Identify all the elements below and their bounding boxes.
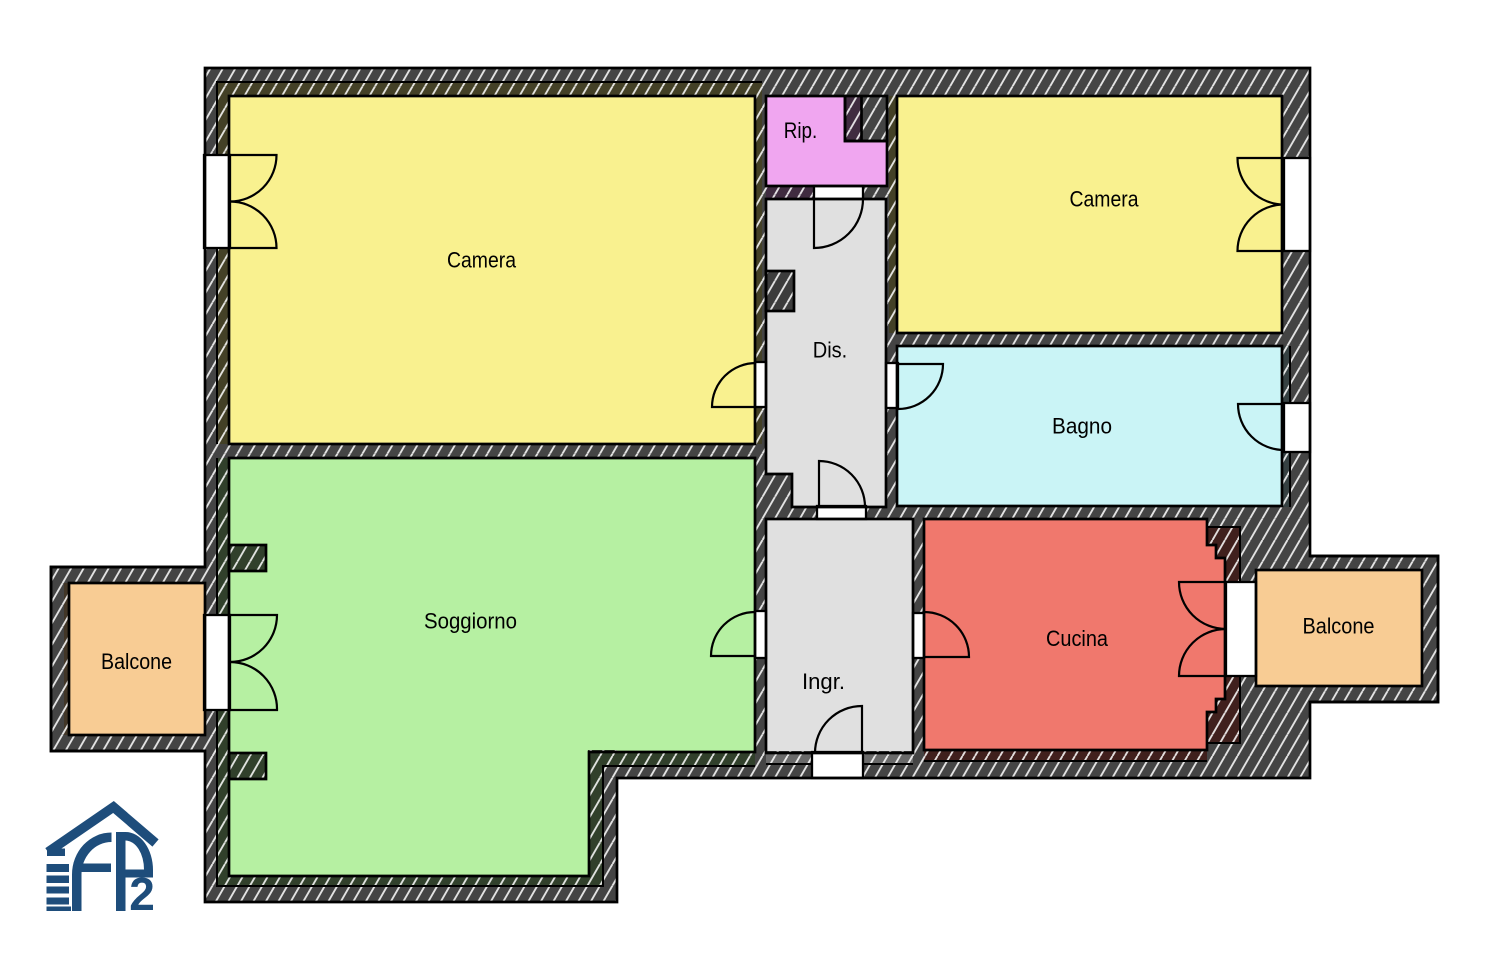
svg-text:Balcone: Balcone [101,649,172,674]
svg-text:Ingr.: Ingr. [802,669,845,694]
svg-text:Camera: Camera [1070,187,1140,212]
svg-text:Soggiorno: Soggiorno [424,609,517,634]
svg-text:Bagno: Bagno [1052,414,1112,439]
svg-text:Cucina: Cucina [1046,626,1109,651]
svg-text:Camera: Camera [447,248,517,273]
svg-text:Balcone: Balcone [1303,614,1375,639]
svg-text:2: 2 [129,868,155,920]
svg-text:Rip.: Rip. [784,118,818,143]
svg-text:Dis.: Dis. [813,338,848,363]
